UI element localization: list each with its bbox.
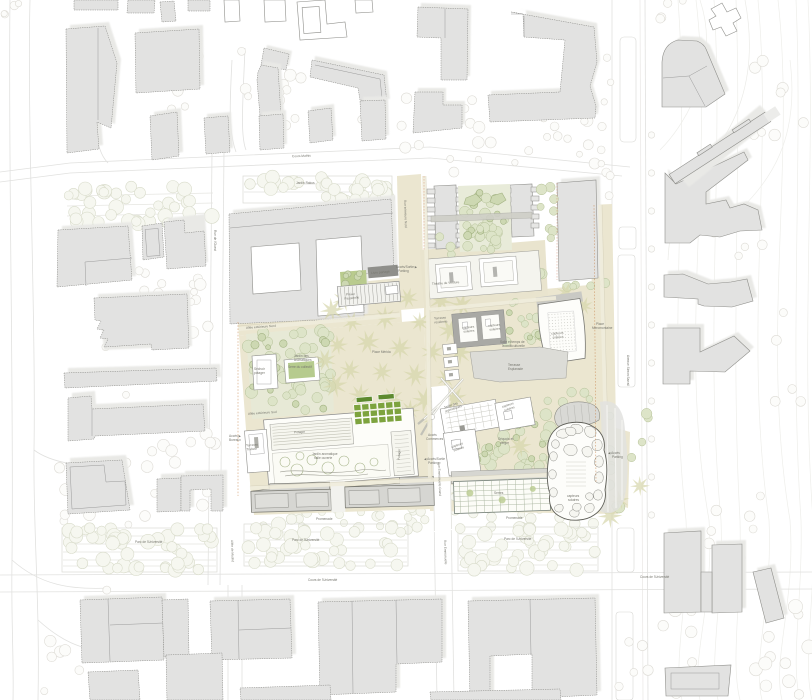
svg-text:Avenue Simon Sarrail: Avenue Simon Sarrail: [626, 355, 630, 386]
svg-text:potager: potager: [254, 371, 266, 375]
svg-text:Parc de l'Université: Parc de l'Université: [504, 537, 532, 541]
svg-text:halle ouverte: halle ouverte: [314, 456, 332, 460]
svg-text:Commerces: Commerces: [426, 437, 444, 441]
svg-text:Promenade: Promenade: [316, 517, 333, 521]
svg-text:verger: verger: [500, 441, 510, 445]
svg-text:Bureaux: Bureaux: [229, 438, 241, 442]
svg-text:Potager: Potager: [294, 430, 306, 435]
svg-text:Serre du collectif: Serre du collectif: [288, 365, 312, 369]
svg-text:Cours Mathis: Cours Mathis: [292, 154, 311, 159]
svg-text:Cours de l'Université: Cours de l'Université: [640, 575, 670, 579]
svg-text:solaires: solaires: [552, 335, 564, 340]
svg-text:solaires: solaires: [568, 498, 579, 502]
svg-text:Méromontaine: Méromontaine: [592, 326, 613, 330]
svg-text:Serres: Serres: [494, 491, 504, 495]
svg-text:Cours de l'Université: Cours de l'Université: [308, 578, 338, 582]
svg-text:la multiculturelle: la multiculturelle: [502, 344, 525, 348]
svg-text:Esplanade: Esplanade: [508, 367, 523, 371]
svg-text:Promenade: Promenade: [506, 516, 523, 520]
svg-text:Parc de l'Université: Parc de l'Université: [135, 540, 163, 544]
svg-text:Parc de l'Université: Parc de l'Université: [292, 538, 320, 542]
svg-text:Potager: Potager: [397, 448, 401, 460]
svg-text:Parking: Parking: [612, 455, 623, 459]
svg-text:Parking: Parking: [398, 269, 409, 273]
svg-text:Allée de Madrid: Allée de Madrid: [230, 540, 235, 563]
svg-text:Jardin Rakus: Jardin Rakus: [296, 181, 315, 185]
svg-text:Place Mérida: Place Mérida: [372, 350, 391, 354]
svg-text:Rue de l'Ouest: Rue de l'Ouest: [213, 230, 217, 251]
svg-text:aromatiques: aromatiques: [294, 358, 312, 362]
